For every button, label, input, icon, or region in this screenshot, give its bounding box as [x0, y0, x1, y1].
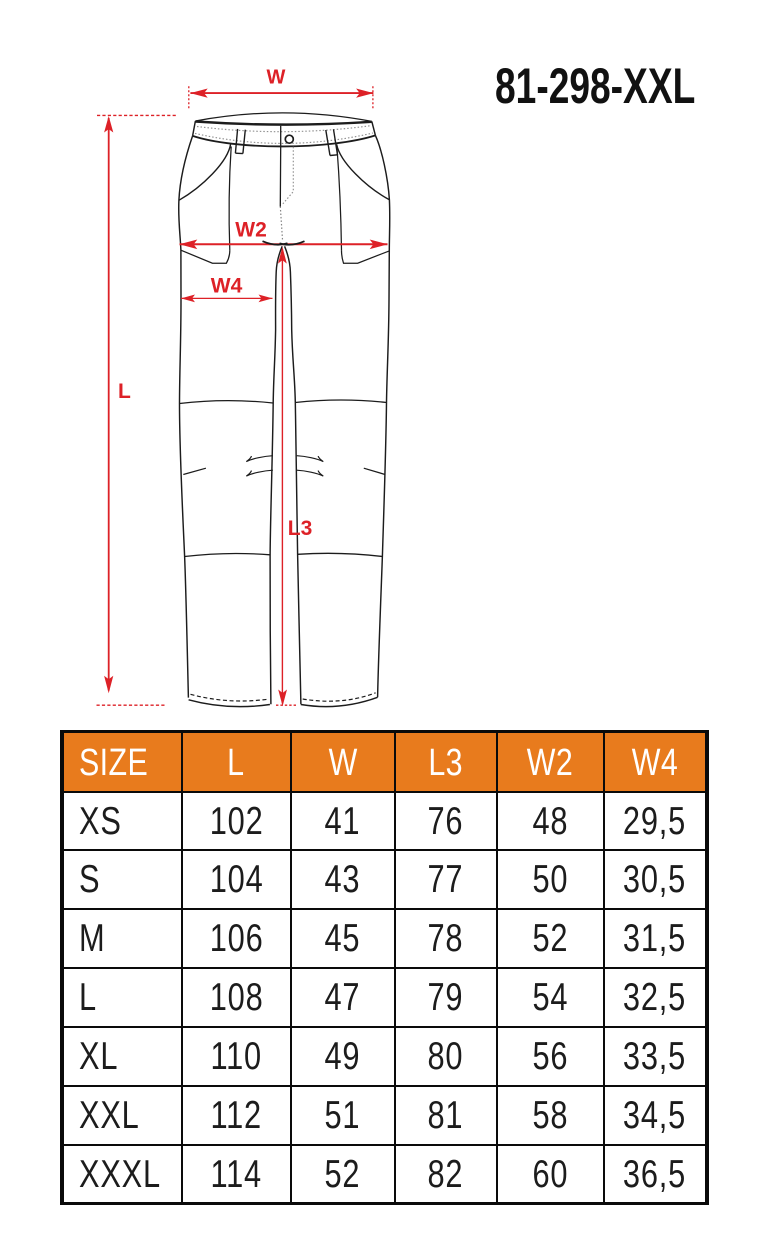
svg-text:W4: W4: [211, 275, 243, 298]
svg-text:W: W: [267, 66, 286, 88]
svg-text:L: L: [118, 380, 131, 403]
svg-text:W2: W2: [235, 219, 267, 242]
svg-text:L3: L3: [288, 517, 313, 540]
